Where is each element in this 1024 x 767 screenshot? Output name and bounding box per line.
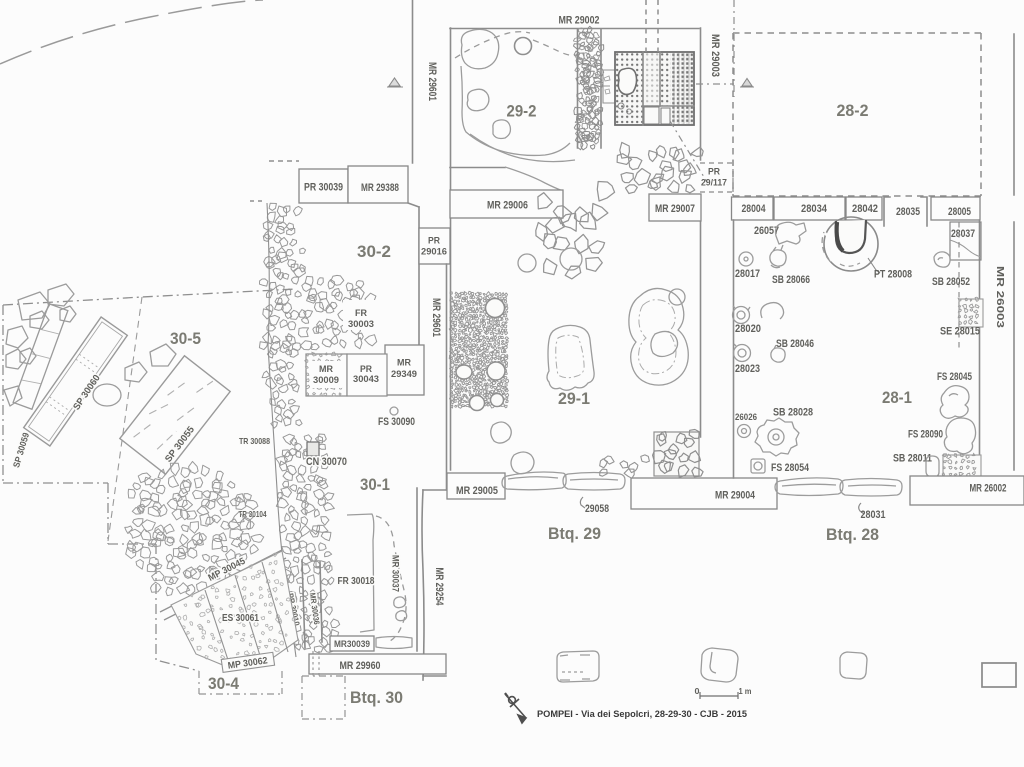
svg-text:PR: PR xyxy=(428,236,440,247)
svg-text:FS 28090: FS 28090 xyxy=(908,429,943,441)
svg-text:MR 29601: MR 29601 xyxy=(430,298,442,337)
svg-text:SP 30055: SP 30055 xyxy=(163,424,197,465)
svg-text:PT 28008: PT 28008 xyxy=(874,269,912,281)
svg-text:ES 30061: ES 30061 xyxy=(222,613,259,624)
svg-text:1 m: 1 m xyxy=(739,687,752,696)
svg-text:MR 29960: MR 29960 xyxy=(340,660,381,672)
svg-text:28042: 28042 xyxy=(852,203,878,215)
svg-text:FS 28045: FS 28045 xyxy=(937,371,972,383)
svg-text:MR 29006: MR 29006 xyxy=(487,200,528,212)
svg-text:CN 30070: CN 30070 xyxy=(306,456,347,468)
svg-text:28037: 28037 xyxy=(951,228,975,240)
svg-text:FS 28054: FS 28054 xyxy=(771,462,810,474)
svg-text:28035: 28035 xyxy=(896,206,920,218)
svg-text:30003: 30003 xyxy=(348,319,374,330)
svg-text:FR 30018: FR 30018 xyxy=(338,576,375,587)
svg-text:MR 29003: MR 29003 xyxy=(709,34,721,77)
svg-text:FS 30090: FS 30090 xyxy=(378,416,415,428)
svg-text:28005: 28005 xyxy=(948,206,971,218)
svg-text:28031: 28031 xyxy=(861,509,886,521)
svg-text:MR: MR xyxy=(319,364,333,375)
svg-text:MR 29388: MR 29388 xyxy=(361,182,399,194)
svg-text:SB 28028: SB 28028 xyxy=(773,407,813,419)
svg-text:28017: 28017 xyxy=(735,268,760,280)
svg-text:29016: 29016 xyxy=(421,247,447,258)
svg-text:SB 28052: SB 28052 xyxy=(932,276,970,288)
svg-text:TR 30088: TR 30088 xyxy=(239,436,270,446)
svg-text:MR 30037: MR 30037 xyxy=(391,555,401,592)
svg-text:MR 29005: MR 29005 xyxy=(456,485,498,497)
svg-text:29349: 29349 xyxy=(391,369,417,380)
svg-text:PR: PR xyxy=(708,167,720,178)
svg-text:28-2: 28-2 xyxy=(837,102,869,120)
svg-text:MR30039: MR30039 xyxy=(334,639,370,650)
svg-text:30043: 30043 xyxy=(353,374,379,385)
svg-text:28023: 28023 xyxy=(735,363,760,375)
svg-text:Btq. 28: Btq. 28 xyxy=(826,526,879,544)
svg-text:29/117: 29/117 xyxy=(701,178,727,189)
svg-text:28020: 28020 xyxy=(735,323,761,335)
svg-text:POMPEI - Via dei Sepolcri, 28-: POMPEI - Via dei Sepolcri, 28-29-30 - CJ… xyxy=(537,709,748,720)
svg-text:MR 29007: MR 29007 xyxy=(655,203,695,215)
svg-text:28004: 28004 xyxy=(742,203,767,215)
svg-text:30009: 30009 xyxy=(313,375,339,386)
svg-text:30-4: 30-4 xyxy=(208,675,240,693)
svg-text:28-1: 28-1 xyxy=(882,389,912,407)
svg-text:29058: 29058 xyxy=(585,503,609,515)
svg-text:MR 26003: MR 26003 xyxy=(994,266,1005,329)
svg-text:MR: MR xyxy=(397,358,411,369)
svg-text:MR 29601: MR 29601 xyxy=(426,62,438,101)
svg-text:0: 0 xyxy=(695,687,701,696)
svg-text:29-1: 29-1 xyxy=(558,390,590,408)
svg-text:29-2: 29-2 xyxy=(507,103,537,121)
svg-text:30-5: 30-5 xyxy=(170,330,201,348)
svg-text:PR 30039: PR 30039 xyxy=(304,182,343,194)
svg-text:Btq. 30: Btq. 30 xyxy=(350,689,403,707)
svg-text:MR 29004: MR 29004 xyxy=(715,490,756,502)
svg-text:MR 29002: MR 29002 xyxy=(559,15,600,27)
svg-text:SP 30060: SP 30060 xyxy=(71,373,102,412)
svg-text:MR 29254: MR 29254 xyxy=(433,568,445,607)
svg-text:SE 28015: SE 28015 xyxy=(940,326,980,338)
svg-text:SB 28066: SB 28066 xyxy=(772,274,810,286)
svg-text:30-2: 30-2 xyxy=(357,243,391,261)
svg-text:MR 26002: MR 26002 xyxy=(970,483,1007,495)
svg-text:26026: 26026 xyxy=(735,412,757,422)
svg-text:SP 30059: SP 30059 xyxy=(11,431,31,468)
svg-text:28034: 28034 xyxy=(801,203,828,215)
svg-text:Btq. 29: Btq. 29 xyxy=(548,525,601,543)
svg-text:FR: FR xyxy=(355,308,367,319)
svg-text:30-1: 30-1 xyxy=(360,476,390,494)
